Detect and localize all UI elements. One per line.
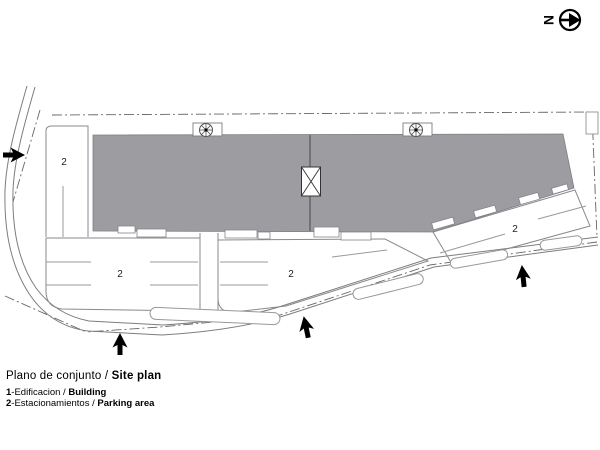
parking-label-south: 2 — [288, 269, 294, 280]
svg-text:N: N — [541, 15, 557, 25]
legend-item-building: 1-Edificacion / Building — [6, 387, 161, 398]
legend: Plano de conjunto / Site plan 1-Edificac… — [6, 370, 161, 409]
parking-label-west: 2 — [61, 157, 67, 168]
plan-title: Plano de conjunto / Site plan — [6, 370, 161, 382]
plan-title-en: Site plan — [112, 370, 162, 382]
entrance-arrow-icon — [296, 315, 315, 340]
entrance-arrow-icon — [3, 148, 25, 163]
building-core-icon — [302, 167, 321, 196]
legend-item-parking: 2-Estacionamientos / Parking area — [6, 398, 161, 409]
spiral-stair-icon — [403, 123, 432, 137]
plan-title-es: Plano de conjunto / — [6, 370, 112, 382]
parking-lot-west-outline — [46, 126, 88, 237]
parking-lot-southwest-outline — [46, 238, 200, 311]
driveway-aprons — [150, 235, 583, 325]
building-footprint — [93, 134, 574, 232]
spiral-stair-icon — [193, 123, 222, 137]
parking-label-southwest: 2 — [117, 269, 123, 280]
parking-label-east: 2 — [512, 224, 518, 235]
parking-lot-south-outline — [218, 239, 428, 312]
entrance-arrow-icon — [514, 264, 531, 287]
north-arrow-icon: N — [541, 10, 581, 30]
site-plan-page: 2 2 2 2 N Plano de conjunto / Site plan … — [0, 0, 600, 450]
entrance-arrow-icon — [113, 333, 128, 355]
